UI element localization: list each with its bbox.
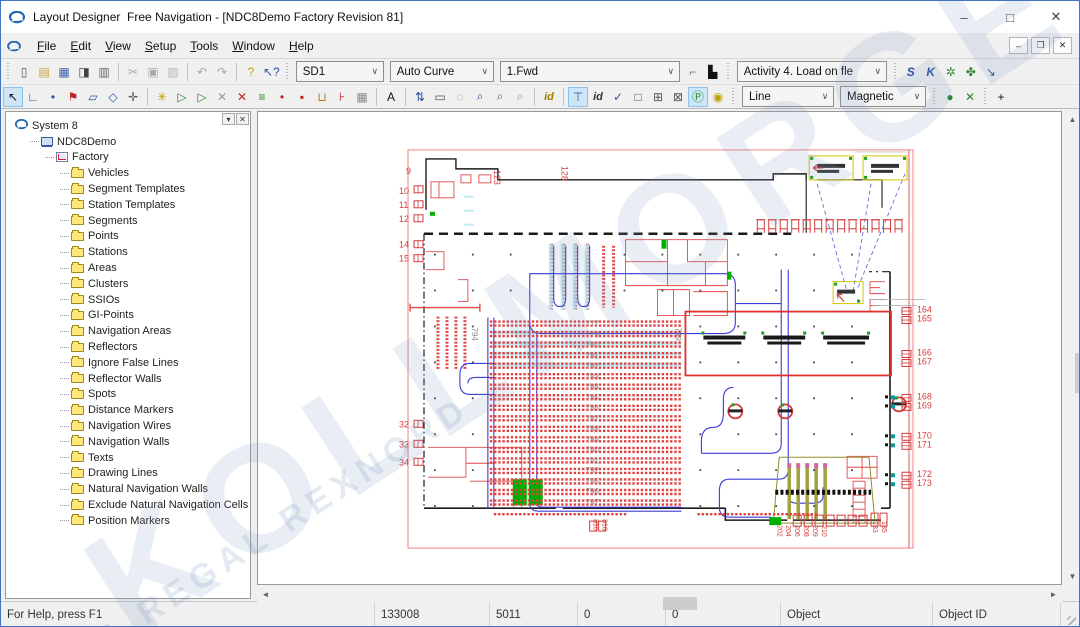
- drawing-label-32: 32: [399, 419, 409, 429]
- drawing-label-34: 34: [399, 457, 409, 467]
- status-panel-0: For Help, press F1: [1, 602, 375, 627]
- tree-connector: [60, 315, 69, 316]
- measure-icon[interactable]: ▭: [430, 87, 450, 107]
- toolbar-grip[interactable]: [983, 88, 988, 106]
- tree-connector: [60, 426, 69, 427]
- folder-icon: [71, 279, 84, 288]
- tree-item-distance-markers[interactable]: Distance Markers: [11, 402, 250, 418]
- drawing-label-210: 210: [820, 525, 827, 537]
- tree-item-label: Drawing Lines: [88, 467, 158, 479]
- tree-item-label: Exclude Natural Navigation Cells: [88, 499, 248, 511]
- pointer-arrow-icon[interactable]: ↘: [981, 62, 1001, 82]
- project-tree-panel: ▾ ✕ System 8NDC8DemoFactoryVehiclesSegme…: [5, 111, 251, 599]
- chevron-down-icon: ∨: [817, 91, 833, 102]
- delete-point-icon[interactable]: ✕: [212, 87, 232, 107]
- paste-icon[interactable]: ▨: [163, 62, 183, 82]
- direction-combo-value: 1.Fwd: [507, 66, 663, 78]
- green-node-icon[interactable]: ●: [940, 87, 960, 107]
- folder-icon: [71, 374, 84, 383]
- drawing-label-202: 202: [775, 525, 782, 537]
- menu-item-file[interactable]: File: [30, 35, 63, 57]
- guide-path-network: [460, 246, 823, 517]
- status-panel-5: Object: [781, 602, 933, 627]
- scroll-left-icon[interactable]: ◄: [257, 590, 274, 599]
- tree-connector: [60, 347, 69, 348]
- status-panel-1: 133008: [375, 602, 490, 627]
- sd-combo-value: SD1: [303, 66, 367, 78]
- tree-item-label: Segment Templates: [88, 183, 185, 195]
- tree-item-navigation-areas[interactable]: Navigation Areas: [11, 323, 250, 339]
- pin-panel-icon[interactable]: ▾: [222, 113, 235, 125]
- tree-connector: [60, 362, 69, 363]
- folder-icon: [71, 248, 84, 257]
- folder-icon: [71, 406, 84, 415]
- tree-item-label: Vehicles: [88, 167, 129, 179]
- flip-icon[interactable]: ⇅: [410, 87, 430, 107]
- menu-bar: FileEditViewSetupToolsWindowHelp –❐✕: [1, 33, 1079, 59]
- drawing-label-169: 169: [917, 400, 932, 410]
- system-logo-icon: [15, 119, 28, 133]
- drawing-label-788: 788: [586, 424, 600, 433]
- tree-item-segment-templates[interactable]: Segment Templates: [11, 181, 250, 197]
- folder-icon: [71, 390, 84, 399]
- tree-panel-header: ▾ ✕: [221, 112, 250, 126]
- insert-point-alt-icon[interactable]: ▷: [192, 87, 212, 107]
- document-logo-icon: [7, 39, 23, 52]
- save-icon[interactable]: ▦: [54, 62, 74, 82]
- drawing-label-208: 208: [802, 525, 809, 537]
- minimize-button[interactable]: –: [941, 2, 987, 33]
- tree-item-ssios[interactable]: SSIOs: [11, 292, 250, 308]
- tree-item-spots[interactable]: Spots: [11, 387, 250, 403]
- move-icon[interactable]: ✛: [123, 87, 143, 107]
- red-square-icon[interactable]: ▪: [292, 87, 312, 107]
- green-blocks: [430, 212, 781, 525]
- station-flag-icon[interactable]: ⊦: [332, 87, 352, 107]
- status-panel-2: 5011: [490, 602, 578, 627]
- mdi-minimize-icon[interactable]: –: [1009, 37, 1028, 54]
- folder-icon: [71, 485, 84, 494]
- folder-icon: [71, 453, 84, 462]
- close-button[interactable]: ✕: [1033, 2, 1079, 33]
- toolbar-grip[interactable]: [285, 63, 290, 81]
- drawing-label-749: 749: [673, 328, 682, 342]
- snap-icon[interactable]: ⊤: [568, 87, 588, 107]
- drawing-canvas[interactable]: 9101112141532333412312879474916416516616…: [257, 111, 1062, 585]
- tree-item-label: Station Templates: [88, 199, 175, 211]
- drawing-label-787: 787: [586, 414, 600, 423]
- open-file-icon[interactable]: ▤: [34, 62, 54, 82]
- id-label-icon[interactable]: id: [588, 87, 608, 107]
- toolbar-separator: [236, 63, 237, 81]
- drawing-label-795: 795: [586, 477, 600, 486]
- undo-icon[interactable]: ↶: [192, 62, 212, 82]
- folder-icon: [71, 264, 84, 273]
- activity-combo[interactable]: Activity 4. Load on fle ∨: [737, 61, 887, 82]
- cut-icon[interactable]: ✂: [123, 62, 143, 82]
- resize-grip[interactable]: [1061, 602, 1079, 627]
- red-point-icon[interactable]: •: [272, 87, 292, 107]
- zoom-window-icon[interactable]: ⌕: [510, 87, 530, 107]
- project-tree: System 8NDC8DemoFactoryVehiclesSegment T…: [6, 112, 250, 529]
- insert-point-icon[interactable]: ▷: [172, 87, 192, 107]
- tree-item-label: Segments: [88, 215, 138, 227]
- context-help-icon[interactable]: ↖?: [261, 62, 282, 82]
- drawing-label-165: 165: [917, 314, 932, 324]
- tree-connector: [60, 520, 69, 521]
- toolbar-grip[interactable]: [932, 88, 937, 106]
- direction-combo[interactable]: 1.Fwd ∨: [500, 61, 680, 82]
- tree-item-natural-navigation-walls[interactable]: Natural Navigation Walls: [11, 481, 250, 497]
- drawing-label-796: 796: [586, 487, 600, 496]
- agv-symbols: [728, 396, 906, 418]
- tree-item-label: Navigation Wires: [88, 420, 171, 432]
- drawing-label-783: 783: [586, 372, 600, 381]
- chevron-down-icon: ∨: [870, 66, 886, 77]
- folder-icon: [71, 469, 84, 478]
- zoom-in-icon[interactable]: ⌕: [470, 87, 490, 107]
- curve-combo-value: Auto Curve: [397, 66, 477, 78]
- print-icon[interactable]: ▥: [94, 62, 114, 82]
- status-panel-6: Object ID: [933, 602, 1061, 627]
- check-icon[interactable]: ✓: [608, 87, 628, 107]
- status-bar: For Help, press F1133008501100ObjectObje…: [1, 601, 1079, 627]
- new-file-icon[interactable]: ▯: [14, 62, 34, 82]
- vertical-scrollbar[interactable]: ▲ ▼: [1064, 111, 1080, 585]
- menu-item-help[interactable]: Help: [282, 35, 321, 57]
- tree-item-areas[interactable]: Areas: [11, 260, 250, 276]
- tree-panel-wrap: ▾ ✕ System 8NDC8DemoFactoryVehiclesSegme…: [1, 109, 253, 601]
- angle-mode-icon[interactable]: ⌐: [683, 62, 703, 82]
- folder-icon: [71, 169, 84, 178]
- drawing-label-797: 797: [586, 498, 600, 507]
- drawing-label-792: 792: [586, 466, 600, 475]
- chevron-down-icon: ∨: [477, 66, 493, 77]
- tree-item-label: System 8: [32, 120, 78, 132]
- tree-connector: [60, 299, 69, 300]
- toolbar-separator: [118, 63, 119, 81]
- horizontal-scroll-thumb[interactable]: [663, 597, 697, 610]
- tree-item-gi-points[interactable]: GI-Points: [11, 308, 250, 324]
- draw-point-icon[interactable]: •: [43, 87, 63, 107]
- lock-icon[interactable]: ◉: [708, 87, 728, 107]
- title-bar: Layout Designer Free Navigation - [NDC8D…: [1, 1, 1079, 33]
- help-icon[interactable]: ?: [241, 62, 261, 82]
- tree-item-label: Reflector Walls: [88, 373, 162, 385]
- folder-icon: [71, 516, 84, 525]
- footprint-icon[interactable]: ▙: [703, 62, 723, 82]
- tree-item-label: Spots: [88, 388, 116, 400]
- delete-segment-icon[interactable]: ✕: [232, 87, 252, 107]
- horizontal-scrollbar[interactable]: ◄ ►: [257, 586, 1062, 603]
- main-area: ▾ ✕ System 8NDC8DemoFactoryVehiclesSegme…: [1, 109, 1079, 601]
- text-icon[interactable]: A: [381, 87, 401, 107]
- tree-connector: [60, 220, 69, 221]
- draw-station-icon[interactable]: ⚑: [63, 87, 83, 107]
- tree-item-label: Factory: [72, 151, 109, 163]
- mdi-close-icon[interactable]: ✕: [1053, 37, 1072, 54]
- tree-connector: [60, 173, 69, 174]
- draw-cluster-icon[interactable]: ◇: [103, 87, 123, 107]
- chevron-down-icon: ∨: [909, 91, 925, 102]
- park-icon[interactable]: Ⓟ: [688, 87, 708, 107]
- drawing-label-818: 818: [601, 519, 608, 531]
- factory-layout-drawing: 9101112141532333412312879474916416516616…: [258, 112, 1061, 584]
- tree-connector: [60, 283, 69, 284]
- drawing-label-816: 816: [592, 519, 599, 531]
- tree-item-label: Distance Markers: [88, 404, 174, 416]
- maximize-button[interactable]: □: [987, 2, 1033, 33]
- layout-designer-window: KOLLMORGEN A REGAL REXNORD Layout Design…: [0, 0, 1080, 627]
- cyan-lanes: [464, 196, 682, 367]
- tree-item-label: Areas: [88, 262, 117, 274]
- toolbar-separator: [534, 88, 535, 106]
- tree-item-label: Texts: [88, 452, 114, 464]
- tree-item-reflectors[interactable]: Reflectors: [11, 339, 250, 355]
- tree-connector: [60, 189, 69, 190]
- tree-connector: [60, 331, 69, 332]
- drawing-label-209: 209: [811, 525, 818, 537]
- select-grid-icon[interactable]: ⊞: [648, 87, 668, 107]
- tree-item-label: Natural Navigation Walls: [88, 483, 208, 495]
- tree-item-label: Ignore False Lines: [88, 357, 179, 369]
- drawing-label-10: 10: [399, 186, 409, 196]
- drawing-label-33: 33: [399, 439, 409, 449]
- activity-combo-value: Activity 4. Load on fle: [744, 66, 870, 78]
- drawing-label-794: 794: [470, 328, 479, 342]
- s-curve-icon[interactable]: S: [901, 62, 921, 82]
- add-spot-icon[interactable]: ✲: [941, 62, 961, 82]
- align-icon[interactable]: ≡: [252, 87, 272, 107]
- folder-icon: [71, 295, 84, 304]
- drawing-label-786: 786: [586, 403, 600, 412]
- select-pointer-icon[interactable]: ↖: [3, 87, 23, 107]
- show-id-icon[interactable]: id: [539, 87, 559, 107]
- curve-combo[interactable]: Auto Curve ∨: [390, 61, 494, 82]
- drawing-label-206: 206: [793, 525, 800, 537]
- drawing-label-782: 782: [586, 361, 600, 370]
- toolbar-grip[interactable]: [893, 63, 898, 81]
- drawing-label-784: 784: [586, 382, 600, 391]
- toolbar-grip[interactable]: [726, 63, 731, 81]
- menu-item-tools[interactable]: Tools: [183, 35, 225, 57]
- copy-icon[interactable]: ▣: [143, 62, 163, 82]
- drawing-label-780: 780: [586, 341, 600, 350]
- tree-item-reflector-walls[interactable]: Reflector Walls: [11, 371, 250, 387]
- tree-item-navigation-wires[interactable]: Navigation Wires: [11, 418, 250, 434]
- drawing-canvas-wrap: 9101112141532333412312879474916416516616…: [257, 111, 1063, 601]
- chevron-down-icon: ∨: [367, 66, 383, 77]
- tree-item-position-markers[interactable]: Position Markers: [11, 513, 250, 529]
- tree-item-factory[interactable]: Factory: [11, 150, 250, 166]
- toolbar-grip[interactable]: [6, 63, 11, 81]
- draw-segment-icon[interactable]: ∟: [23, 87, 43, 107]
- drawing-label-128: 128: [560, 166, 570, 181]
- tree-item-label: Position Markers: [88, 515, 170, 527]
- folder-icon: [71, 422, 84, 431]
- standard-toolbar: ▯▤▦◨▥✂▣▨↶↷?↖? SD1 ∨ Auto Curve ∨ 1.Fwd ∨…: [1, 59, 1079, 85]
- add-plus-icon[interactable]: +: [991, 87, 1011, 107]
- tree-item-stations[interactable]: Stations: [11, 244, 250, 260]
- drawing-label-778: 778: [586, 331, 600, 340]
- tree-item-label: Reflectors: [88, 341, 138, 353]
- tree-item-label: Stations: [88, 246, 128, 258]
- tree-connector: [30, 141, 39, 142]
- tree-connector: [60, 489, 69, 490]
- menu-item-window[interactable]: Window: [225, 35, 282, 57]
- folder-icon: [71, 216, 84, 225]
- add-segment-icon[interactable]: ✤: [961, 62, 981, 82]
- computer-icon: [41, 137, 53, 146]
- toolbar-separator: [147, 88, 148, 106]
- scroll-down-icon[interactable]: ▼: [1069, 568, 1077, 585]
- tree-connector: [60, 441, 69, 442]
- drawing-label-14: 14: [399, 240, 409, 250]
- folder-icon: [71, 358, 84, 367]
- tree-item-label: Navigation Walls: [88, 436, 170, 448]
- tree-item-ndc8demo[interactable]: NDC8Demo: [11, 134, 250, 150]
- tree-item-points[interactable]: Points: [11, 229, 250, 245]
- tree-connector: [60, 457, 69, 458]
- toolbar-separator: [376, 88, 377, 106]
- sd-combo[interactable]: SD1 ∨: [296, 61, 384, 82]
- drawing-label-183: 183: [871, 521, 878, 533]
- toolbar-separator: [563, 88, 564, 106]
- tree-connector: [60, 252, 69, 253]
- status-panel-3: 0: [578, 602, 666, 627]
- drawing-label-790: 790: [586, 445, 600, 454]
- folder-icon: [71, 200, 84, 209]
- magnetic-combo[interactable]: Magnetic ∨: [840, 86, 926, 107]
- scroll-up-icon[interactable]: ▲: [1069, 111, 1077, 128]
- tree-connector: [60, 505, 69, 506]
- folder-icon: [71, 311, 84, 320]
- tree-item-navigation-walls[interactable]: Navigation Walls: [11, 434, 250, 450]
- drawing-label-785: 785: [586, 393, 600, 402]
- tree-item-label: Navigation Areas: [88, 325, 171, 337]
- tree-item-system-8[interactable]: System 8: [11, 118, 250, 134]
- factory-icon: [56, 152, 68, 162]
- menu-item-view[interactable]: View: [98, 35, 138, 57]
- toolbar-grip[interactable]: [731, 88, 736, 106]
- drawing-label-123: 123: [492, 170, 502, 185]
- drawing-label-171: 171: [917, 439, 932, 449]
- tree-item-label: Clusters: [88, 278, 128, 290]
- tree-connector: [45, 157, 54, 158]
- folder-icon: [71, 501, 84, 510]
- line-combo[interactable]: Line ∨: [742, 86, 834, 107]
- tree-item-drawing-lines[interactable]: Drawing Lines: [11, 466, 250, 482]
- draw-area-icon[interactable]: ▱: [83, 87, 103, 107]
- tree-connector: [60, 410, 69, 411]
- tree-item-exclude-natural-navigation-cells[interactable]: Exclude Natural Navigation Cells: [11, 497, 250, 513]
- tree-connector: [60, 473, 69, 474]
- tree-connector: [60, 204, 69, 205]
- drawing-label-777: 777: [586, 320, 600, 329]
- revision-icon[interactable]: ◨: [74, 62, 94, 82]
- tree-connector: [60, 268, 69, 269]
- tree-connector: [60, 378, 69, 379]
- u-turn-icon[interactable]: ⊔: [312, 87, 332, 107]
- drawing-label-15: 15: [399, 254, 409, 264]
- chevron-down-icon: ∨: [663, 66, 679, 77]
- tree-item-label: Points: [88, 230, 119, 242]
- tree-item-vehicles[interactable]: Vehicles: [11, 165, 250, 181]
- select-region-icon[interactable]: □: [628, 87, 648, 107]
- app-logo-icon: [9, 11, 25, 24]
- tree-item-ignore-false-lines[interactable]: Ignore False Lines: [11, 355, 250, 371]
- k-factor-icon[interactable]: K: [921, 62, 941, 82]
- lasso-icon[interactable]: ◌: [450, 87, 470, 107]
- line-combo-value: Line: [749, 91, 817, 103]
- green-cross-icon[interactable]: ✕: [960, 87, 980, 107]
- drawing-label-789: 789: [586, 435, 600, 444]
- toolbar-separator: [187, 63, 188, 81]
- redo-icon[interactable]: ↷: [212, 62, 232, 82]
- grid-icon[interactable]: ⊠: [668, 87, 688, 107]
- drawing-label-185: 185: [880, 521, 887, 533]
- drawing-label-791: 791: [586, 456, 600, 465]
- tree-item-station-templates[interactable]: Station Templates: [11, 197, 250, 213]
- vertical-scroll-thumb[interactable]: [1075, 353, 1080, 393]
- folder-icon: [71, 327, 84, 336]
- menu-item-edit[interactable]: Edit: [63, 35, 98, 57]
- drawing-label-173: 173: [917, 478, 932, 488]
- folder-icon: [71, 343, 84, 352]
- drawing-frame: [408, 150, 913, 548]
- spot-icon[interactable]: ✳: [152, 87, 172, 107]
- menu-item-setup[interactable]: Setup: [138, 35, 183, 57]
- drawing-label-204: 204: [784, 525, 791, 537]
- tree-connector: [60, 236, 69, 237]
- drawing-label-12: 12: [399, 214, 409, 224]
- scroll-right-icon[interactable]: ►: [1045, 590, 1062, 599]
- drawing-label-167: 167: [917, 356, 932, 366]
- tree-item-label: SSIOs: [88, 294, 120, 306]
- mdi-restore-icon[interactable]: ❐: [1031, 37, 1050, 54]
- tree-item-segments[interactable]: Segments: [11, 213, 250, 229]
- window-title: Layout Designer Free Navigation - [NDC8D…: [33, 10, 403, 24]
- tree-item-label: GI-Points: [88, 309, 134, 321]
- close-panel-icon[interactable]: ✕: [236, 113, 249, 125]
- tree-connector: [60, 394, 69, 395]
- drawing-label-781: 781: [586, 351, 600, 360]
- folder-icon: [71, 437, 84, 446]
- zoom-out-icon[interactable]: ⌕: [490, 87, 510, 107]
- drawing-toolbar: ↖∟•⚑▱◇✛✳▷▷✕✕≡•▪⊔⊦▦A⇅▭◌⌕⌕⌕id⊤id✓□⊞⊠Ⓟ◉ Lin…: [1, 85, 1079, 109]
- toolbar-separator: [405, 88, 406, 106]
- tree-item-clusters[interactable]: Clusters: [11, 276, 250, 292]
- magnetic-combo-value: Magnetic: [847, 91, 909, 103]
- template-icon[interactable]: ▦: [352, 87, 372, 107]
- drawing-label-9: 9: [406, 166, 411, 176]
- tree-item-label: NDC8Demo: [57, 136, 116, 148]
- folder-icon: [71, 232, 84, 241]
- tree-item-texts[interactable]: Texts: [11, 450, 250, 466]
- drawing-label-11: 11: [399, 200, 408, 210]
- folder-icon: [71, 185, 84, 194]
